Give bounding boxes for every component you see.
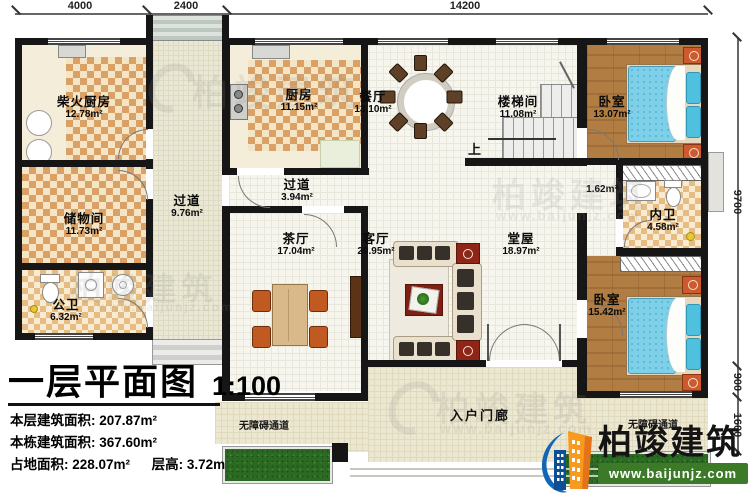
- room-name: 过道: [262, 178, 332, 192]
- room-area: 11.08m²: [483, 109, 553, 120]
- wall: [701, 38, 708, 398]
- wall: [15, 38, 22, 340]
- room-label-guodao2: 过道 3.94m²: [262, 178, 332, 203]
- dining-chair: [447, 91, 463, 104]
- kitchen-sink: [252, 45, 290, 59]
- room-label-canting: 餐厅 13.10m²: [334, 90, 412, 115]
- room-area: 13.10m²: [334, 104, 412, 115]
- tea-chair: [252, 290, 271, 312]
- info-line-floor-area: 本层建筑面积: 207.87m²: [10, 409, 157, 429]
- door-leaf: [559, 324, 561, 361]
- burner-icon: [234, 90, 243, 99]
- nightstand: [682, 276, 703, 294]
- window: [48, 38, 120, 45]
- room-area: 4.58m²: [628, 222, 698, 233]
- tea-table: [272, 284, 308, 346]
- plant-icon: [417, 293, 429, 305]
- door-opening: [577, 128, 587, 158]
- room-area: 17.04m²: [258, 246, 334, 257]
- chaihuo-sink: [58, 45, 86, 58]
- sofa-bottom: [393, 336, 459, 362]
- room-name: 楼梯间: [483, 95, 553, 109]
- room-area: 9.76m²: [152, 208, 222, 219]
- door-opening: [302, 206, 344, 213]
- info-value: 3.72m: [187, 457, 225, 472]
- info-line-building-area: 本栋建筑面积: 367.60m²: [10, 431, 157, 451]
- room-label-chaihuo: 柴火厨房 12.78m²: [44, 95, 124, 120]
- window: [620, 391, 692, 398]
- sofa-right: [452, 263, 482, 341]
- info-label: 占地面积:: [10, 457, 69, 472]
- room-label-neiwei: 内卫 4.58m²: [628, 208, 698, 233]
- room-label-keting: 客厅 20.95m²: [338, 232, 414, 257]
- neiwei-lamp: [686, 232, 695, 241]
- bed1-pillow: [686, 72, 701, 104]
- info-value: 228.07m²: [72, 457, 130, 472]
- plan-scale: 1:100: [212, 372, 281, 400]
- title-block: 一层平面图 1:100: [8, 364, 281, 400]
- page-title: 一层平面图: [8, 364, 198, 400]
- burner-icon: [234, 104, 243, 113]
- wall: [222, 206, 368, 213]
- info-label: 本层建筑面积:: [10, 413, 96, 428]
- window: [35, 333, 93, 340]
- room-name: 厨房: [259, 88, 339, 102]
- company-website-banner: www.baijunjz.com: [598, 463, 748, 484]
- room-area: 12.78m²: [44, 109, 124, 120]
- wall: [15, 160, 146, 167]
- nook-area-label: 1.62m²: [576, 184, 628, 195]
- bed1-blanket: [666, 66, 685, 140]
- room-area: 6.32m²: [36, 312, 96, 323]
- room-area: 11.15m²: [259, 102, 339, 113]
- closet-hatch-2: [620, 256, 703, 272]
- bed2-pillow: [686, 304, 701, 336]
- room-name: 过道: [152, 194, 222, 208]
- wall: [465, 158, 587, 166]
- dimension-line-top: [15, 13, 708, 15]
- door-leaf: [487, 324, 489, 361]
- company-logo-icon: [534, 428, 600, 494]
- company-logo-name: 柏竣建筑: [598, 426, 742, 460]
- room-area: 15.42m²: [572, 307, 642, 318]
- info-label: 层高:: [152, 457, 184, 472]
- room-area: 18.97m²: [483, 246, 559, 257]
- kitchen-stove: [230, 84, 248, 120]
- room-label-chuwu: 储物间 11.73m²: [44, 212, 124, 237]
- window: [607, 38, 679, 45]
- door-opening: [616, 219, 623, 247]
- ramp-left-label: 无障碍通道: [214, 417, 314, 432]
- window: [496, 38, 558, 45]
- nightstand: [682, 374, 703, 391]
- room-name: 公卫: [36, 298, 96, 312]
- side-table-top: [456, 243, 480, 264]
- neiwei-toilet-bowl: [666, 187, 681, 207]
- dim-right-1: 9700: [731, 179, 743, 225]
- dim-top-1: 4000: [45, 0, 115, 12]
- window: [255, 38, 343, 45]
- room-name: 卧室: [572, 293, 642, 307]
- grass-left: [223, 447, 332, 483]
- room-name: 餐厅: [334, 90, 412, 104]
- room-label-chating: 茶厅 17.04m²: [258, 232, 334, 257]
- dining-chair: [414, 55, 427, 71]
- dining-chair: [414, 123, 427, 139]
- washing-machine: [78, 272, 104, 298]
- neiwei-basin: [626, 181, 656, 201]
- room-name: 内卫: [628, 208, 698, 222]
- room-area: 20.95m²: [338, 246, 414, 257]
- tea-chair: [309, 290, 328, 312]
- room-label-louti: 楼梯间 11.08m²: [483, 95, 553, 120]
- porch-column: [332, 443, 348, 462]
- corridor-floor: [153, 15, 222, 363]
- bed2-pillow: [686, 338, 701, 370]
- bed2-blanket: [666, 298, 685, 372]
- info-label: 本栋建筑面积:: [10, 435, 96, 450]
- window-sill-right: [708, 152, 724, 212]
- side-table-bottom: [456, 340, 480, 361]
- dim-top-3: 14200: [430, 0, 500, 12]
- wall: [222, 38, 230, 175]
- kitchen-mat: [320, 140, 360, 168]
- entry-door-opening: [486, 360, 562, 367]
- tea-chair: [309, 326, 328, 348]
- dim-right-2: 900: [731, 362, 743, 402]
- room-name: 柴火厨房: [44, 95, 124, 109]
- room-area: 13.07m²: [577, 109, 647, 120]
- stair-direction-line: [488, 138, 556, 140]
- wall: [616, 248, 708, 256]
- info-value: 207.87m²: [99, 413, 157, 428]
- room-name: 堂屋: [483, 232, 559, 246]
- dim-top-2: 2400: [151, 0, 221, 12]
- door-opening: [237, 168, 284, 175]
- porch-label: 入户门廊: [420, 405, 540, 424]
- title-underline: [8, 403, 220, 406]
- corridor-top-steps: [152, 15, 224, 41]
- room-name: 储物间: [44, 212, 124, 226]
- wall: [222, 14, 229, 40]
- tea-chair: [252, 326, 271, 348]
- gongwei-basin: [112, 274, 134, 296]
- info-value: 367.60m²: [99, 435, 157, 450]
- room-name: 客厅: [338, 232, 414, 246]
- info-line-footprint: 占地面积: 228.07m² 层高: 3.72m: [10, 453, 225, 473]
- room-label-woshi1: 卧室 13.07m²: [577, 95, 647, 120]
- room-label-chufang: 厨房 11.15m²: [259, 88, 339, 113]
- stairs-up-label: 上: [468, 139, 481, 158]
- closet-hatch-1: [620, 165, 703, 181]
- floor-plan: 柏竣建筑 柏竣建筑 www.baijunjz.com 柏竣建筑 www.baij…: [0, 0, 750, 495]
- room-name: 卧室: [577, 95, 647, 109]
- wall: [146, 14, 153, 40]
- bed1-pillow: [686, 106, 701, 138]
- room-label-guodao1: 过道 9.76m²: [152, 194, 222, 219]
- room-label-woshi2: 卧室 15.42m²: [572, 293, 642, 318]
- room-label-gongwei: 公卫 6.32m²: [36, 298, 96, 323]
- room-area: 3.94m²: [262, 192, 332, 203]
- room-label-tangwu: 堂屋 18.97m²: [483, 232, 559, 257]
- wall: [15, 263, 146, 270]
- window: [378, 38, 448, 45]
- room-name: 茶厅: [258, 232, 334, 246]
- room-area: 11.73m²: [44, 226, 124, 237]
